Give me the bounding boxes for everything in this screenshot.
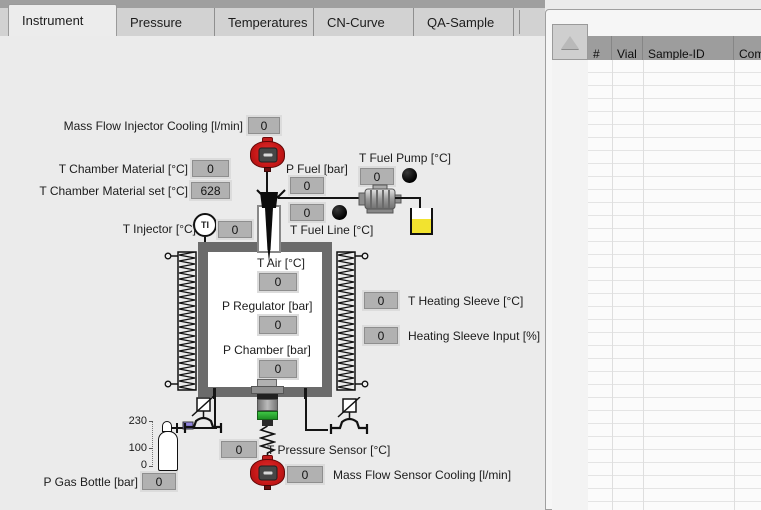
tab-qa-sample[interactable]: QA-Sample <box>414 8 514 36</box>
scale-tick-mark <box>149 466 153 467</box>
pipe-line <box>395 197 421 199</box>
fuel-line <box>278 197 362 199</box>
sensor-bar <box>263 471 272 474</box>
field-p-fuel[interactable]: 0 <box>290 177 324 194</box>
heating-coil-left-icon <box>160 248 198 401</box>
label-p-gas-bottle: P Gas Bottle [bar] <box>30 475 138 489</box>
row-selector-icon <box>561 36 579 49</box>
label-t-injector: T Injector [°C] <box>108 222 196 236</box>
row-indicator-column <box>552 60 589 510</box>
heating-coil-right-icon <box>335 248 373 401</box>
scale-tick-100: 100 <box>121 442 147 454</box>
field-mass-flow-injector-cooling[interactable]: 0 <box>248 117 280 134</box>
sensor-bar <box>263 153 272 156</box>
tab-cn-curve-label: CN-Curve <box>327 15 385 30</box>
fuel-liquid <box>412 219 431 233</box>
column-header-number-label: # <box>593 47 600 61</box>
field-p-chamber[interactable]: 0 <box>259 360 297 378</box>
tab-bar: Instrument Pressure Temperatures CN-Curv… <box>0 0 545 36</box>
label-t-chamber-material: T Chamber Material [°C] <box>38 162 188 176</box>
field-t-chamber-material-set[interactable]: 628 <box>191 182 230 199</box>
tab-instrument-label: Instrument <box>22 13 83 28</box>
tab-separator <box>519 10 520 34</box>
field-heating-sleeve-input[interactable]: 0 <box>364 327 398 344</box>
connector-flange <box>251 386 284 394</box>
fuel-pump-icon <box>357 183 403 220</box>
injector-icon <box>253 188 287 269</box>
field-t-air[interactable]: 0 <box>259 273 297 291</box>
label-t-fuel-pump: T Fuel Pump [°C] <box>359 151 451 165</box>
grid-vline <box>612 60 613 510</box>
sensor-core <box>258 147 277 162</box>
column-header-sample-id-label: Sample-ID <box>648 47 705 61</box>
pipe-line <box>306 429 328 431</box>
tab-temperatures[interactable]: Temperatures <box>215 8 314 36</box>
temperature-indicator-ti: TI <box>193 213 217 237</box>
field-t-pressure-sensor[interactable]: 0 <box>221 441 257 458</box>
led-t-fuel-line <box>332 205 347 220</box>
label-t-pressure-sensor: T Pressure Sensor [°C] <box>267 443 390 457</box>
field-p-regulator[interactable]: 0 <box>259 316 297 334</box>
ti-label: TI <box>201 220 209 230</box>
scale-axis <box>152 421 153 467</box>
gas-regulator-valve-left-icon <box>181 396 223 439</box>
field-p-gas-bottle[interactable]: 0 <box>142 473 176 490</box>
row-selector-header[interactable] <box>552 24 588 60</box>
flow-sensor-injector-icon <box>250 137 285 172</box>
gas-bottle-icon <box>158 431 178 471</box>
scale-tick-230: 230 <box>121 415 147 427</box>
label-t-heating-sleeve: T Heating Sleeve [°C] <box>408 294 523 308</box>
grid-vline <box>734 60 735 510</box>
label-p-chamber: P Chamber [bar] <box>223 343 311 357</box>
label-t-chamber-material-set: T Chamber Material set [°C] <box>28 184 188 198</box>
tab-temperatures-label: Temperatures <box>228 15 307 30</box>
scale-tick-mark <box>149 421 153 422</box>
sensor-body <box>250 141 285 168</box>
tab-pressure-label: Pressure <box>130 15 182 30</box>
gas-regulator-valve-right-icon <box>327 397 369 440</box>
sensor-body <box>250 459 285 486</box>
column-header-vial-label: Vial <box>617 47 637 61</box>
field-t-injector[interactable]: 0 <box>218 221 252 238</box>
pipe-fitting <box>176 423 178 433</box>
sensor-core <box>258 465 277 480</box>
label-mass-flow-injector-cooling: Mass Flow Injector Cooling [l/min] <box>55 119 243 133</box>
tab-instrument[interactable]: Instrument <box>8 4 117 36</box>
tab-pressure[interactable]: Pressure <box>117 8 215 36</box>
fuel-beaker-icon <box>410 208 433 235</box>
label-heating-sleeve-input: Heating Sleeve Input [%] <box>408 329 540 343</box>
sample-grid-body[interactable] <box>588 60 761 510</box>
connector-body <box>257 399 278 411</box>
column-header-comment-label: Com <box>739 47 761 61</box>
scale-tick-mark <box>149 448 153 449</box>
field-t-heating-sleeve[interactable]: 0 <box>364 292 398 309</box>
label-p-fuel: P Fuel [bar] <box>286 162 348 176</box>
scale-tick-0: 0 <box>121 459 147 471</box>
label-mass-flow-sensor-cooling: Mass Flow Sensor Cooling [l/min] <box>333 468 511 482</box>
pipe-line <box>305 398 307 431</box>
field-t-chamber-material[interactable]: 0 <box>192 160 229 177</box>
sensor-stub <box>264 485 271 490</box>
field-t-fuel-line[interactable]: 0 <box>290 204 324 221</box>
field-mass-flow-sensor-cooling[interactable]: 0 <box>287 466 323 483</box>
instrument-app-window: Instrument Pressure Temperatures CN-Curv… <box>0 0 761 510</box>
tab-qa-sample-label: QA-Sample <box>427 15 494 30</box>
label-t-fuel-line: T Fuel Line [°C] <box>290 223 373 237</box>
led-t-fuel-pump <box>402 168 417 183</box>
grid-vline <box>643 60 644 510</box>
tab-cn-curve[interactable]: CN-Curve <box>314 8 414 36</box>
label-p-regulator: P Regulator [bar] <box>222 299 313 313</box>
connector-band-green <box>257 411 278 420</box>
flow-sensor-cooling-icon <box>250 455 285 490</box>
